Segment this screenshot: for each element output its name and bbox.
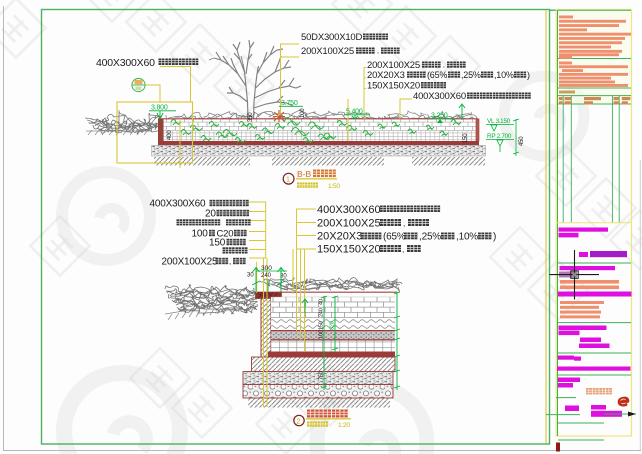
svg-text:750: 750 xyxy=(319,371,325,380)
svg-text:400X300X60: 400X300X60 xyxy=(317,204,381,216)
svg-text:820: 820 xyxy=(330,321,336,330)
svg-text:200X100X25: 200X100X25 xyxy=(162,257,218,268)
svg-text:,: , xyxy=(402,245,404,254)
svg-text:150: 150 xyxy=(209,238,226,249)
svg-text:350: 350 xyxy=(248,112,254,122)
svg-text:1:20: 1:20 xyxy=(338,422,350,429)
svg-text:150X150X20: 150X150X20 xyxy=(367,81,420,92)
svg-text:100: 100 xyxy=(192,229,209,240)
svg-text:150: 150 xyxy=(319,321,325,330)
svg-text:100: 100 xyxy=(319,330,325,339)
svg-text:150X150X20: 150X150X20 xyxy=(317,244,381,256)
svg-text:,: , xyxy=(443,62,445,69)
svg-text:(65%: (65% xyxy=(427,70,447,80)
svg-text:2: 2 xyxy=(297,419,301,426)
svg-text:400X300X60: 400X300X60 xyxy=(96,57,155,69)
svg-text:,: , xyxy=(229,257,231,266)
svg-text:40: 40 xyxy=(319,299,325,305)
svg-text:RP 2.700: RP 2.700 xyxy=(487,133,512,140)
svg-text:(65%: (65% xyxy=(383,232,406,243)
svg-text:200X100X25: 200X100X25 xyxy=(301,46,354,57)
svg-text:,10%: ,10% xyxy=(494,70,514,80)
svg-text:150: 150 xyxy=(463,133,469,143)
svg-text:240: 240 xyxy=(261,273,272,279)
svg-text:B-B: B-B xyxy=(297,169,312,179)
svg-text:,: , xyxy=(377,48,379,55)
svg-text:20X20X3: 20X20X3 xyxy=(367,70,405,81)
svg-text:20X20X3: 20X20X3 xyxy=(317,231,362,243)
svg-text:): ) xyxy=(493,232,496,243)
svg-text:,25%: ,25% xyxy=(419,232,441,243)
svg-text:VL 3.150: VL 3.150 xyxy=(487,118,511,125)
svg-text:1:50: 1:50 xyxy=(328,183,340,190)
svg-text:): ) xyxy=(527,70,530,80)
svg-text:1: 1 xyxy=(286,177,290,184)
svg-text:50DX300X10D: 50DX300X10D xyxy=(301,32,363,43)
svg-text:200X100X25: 200X100X25 xyxy=(317,218,381,230)
svg-text:30: 30 xyxy=(247,273,254,279)
svg-text:100: 100 xyxy=(300,108,306,118)
svg-text:,25%: ,25% xyxy=(461,70,481,80)
svg-text:450: 450 xyxy=(519,136,525,146)
svg-text:,: , xyxy=(403,219,405,228)
svg-text:20: 20 xyxy=(205,209,216,220)
svg-text:400: 400 xyxy=(167,130,173,140)
svg-text:240: 240 xyxy=(319,308,325,317)
svg-text:400X300X60: 400X300X60 xyxy=(150,199,206,210)
svg-text:,10%: ,10% xyxy=(456,232,478,243)
svg-text:400X300X60: 400X300X60 xyxy=(413,91,466,102)
